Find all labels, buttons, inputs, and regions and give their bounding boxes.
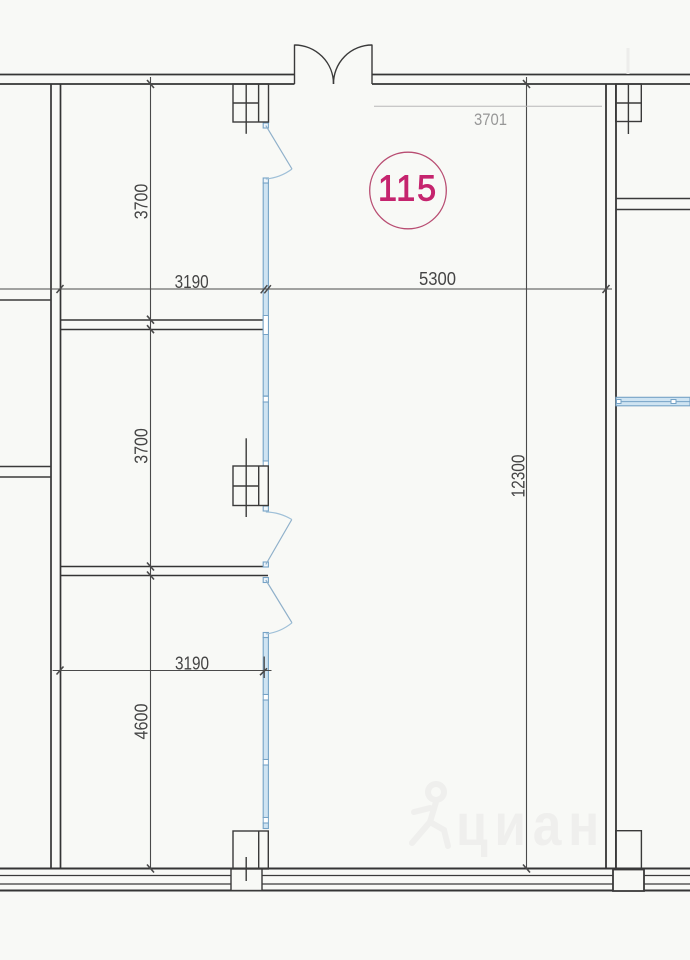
svg-text:3700: 3700	[132, 428, 152, 464]
svg-text:3190: 3190	[175, 272, 209, 292]
svg-text:циан: циан	[456, 790, 606, 857]
svg-text:115: 115	[378, 168, 438, 209]
svg-text:4600: 4600	[131, 704, 151, 740]
svg-text:3700: 3700	[132, 184, 152, 220]
svg-text:3190: 3190	[175, 654, 209, 674]
svg-text:12300: 12300	[508, 455, 528, 498]
svg-text:3701: 3701	[474, 110, 507, 129]
svg-text:5300: 5300	[419, 269, 456, 289]
